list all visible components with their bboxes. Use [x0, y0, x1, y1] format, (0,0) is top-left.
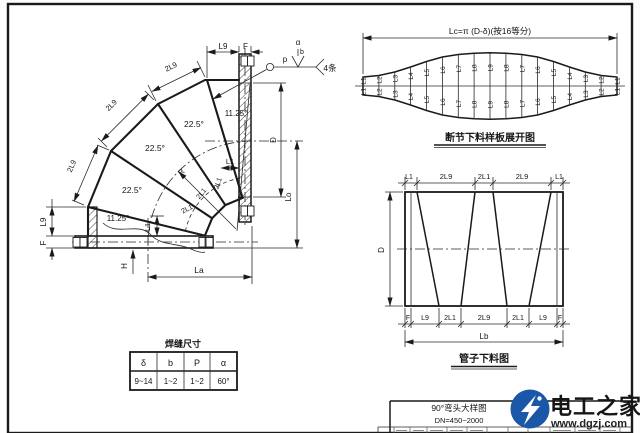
- dim-label: F: [406, 315, 410, 322]
- pipe-layout-title: 管子下料图: [459, 352, 509, 365]
- ordinate-label: L2: [376, 76, 383, 84]
- callout-label: α: [296, 38, 301, 47]
- ordinate-label: L4: [567, 93, 574, 101]
- bolt-tab: [206, 238, 213, 248]
- ordinate-label: L9: [488, 101, 495, 109]
- dim-label: 2L1: [478, 172, 491, 181]
- ordinate-label: L6: [440, 98, 447, 106]
- dim-label: 2L1: [512, 315, 524, 322]
- watermark-name: 电工之家: [550, 394, 640, 419]
- ordinate-label: L1: [615, 88, 622, 96]
- ordinate-label: L5: [551, 69, 558, 77]
- dim-label: F: [243, 42, 248, 51]
- dim-label: L9: [39, 217, 48, 226]
- ordinate-label: L8: [503, 64, 510, 72]
- watermark-logo-dot: [537, 396, 541, 400]
- bolt-tab: [73, 238, 80, 248]
- dim-label: L9: [421, 315, 429, 322]
- dim-label: L9: [539, 315, 547, 322]
- drawing-title: 90°弯头大样图: [431, 403, 486, 413]
- ordinate-label: L4: [408, 93, 415, 101]
- bolt-tab: [248, 206, 255, 216]
- watermark-url: www.dgzj.com: [550, 418, 627, 430]
- ordinate-label: L8: [503, 100, 510, 108]
- callout-label: b: [300, 49, 304, 56]
- ordinate-label: L8: [472, 100, 479, 108]
- ordinate-label: L3: [392, 90, 399, 98]
- bolt-tab: [248, 56, 255, 66]
- ordinate-label: L5: [424, 96, 431, 104]
- dim-label: D: [377, 247, 386, 253]
- angle-label: 22.5°: [145, 143, 165, 153]
- ordinate-label: L7: [519, 100, 526, 108]
- angle-label: 11.25°: [107, 214, 130, 223]
- table-cell: 1~2: [164, 377, 178, 386]
- bolt-tab: [80, 238, 87, 248]
- angle-label: 22.5°: [122, 185, 142, 195]
- ordinate-label: L5: [424, 69, 431, 77]
- watermark: 电工之家 www.dgzj.com: [511, 390, 640, 431]
- bolt-tab: [241, 56, 248, 66]
- bolt-tab: [241, 206, 248, 216]
- development-dim-label: Lc=π (D-δ)(按16等分): [449, 26, 531, 36]
- ordinate-label: L4: [408, 72, 415, 80]
- table-title: 焊缝尺寸: [165, 338, 201, 349]
- table-cell: 1~2: [190, 377, 204, 386]
- ordinate-label: L7: [456, 100, 463, 108]
- ordinate-label: L8: [472, 64, 479, 72]
- ordinate-label: L1: [361, 88, 368, 96]
- drawing-page: L9 F L1 D Lo La H L9 F L1 R 11.25° 22.5°…: [0, 0, 640, 433]
- table-header: α: [221, 358, 226, 368]
- development-title: 断节下料样板展开图: [445, 131, 535, 144]
- dim-label: 2L9: [516, 172, 529, 181]
- dim-label: 2L9: [478, 313, 491, 322]
- ordinate-label: L9: [488, 64, 495, 72]
- ordinate-label: L3: [583, 90, 590, 98]
- dim-label: L1: [405, 174, 413, 181]
- table-header: b: [168, 358, 173, 368]
- dim-label: La: [194, 265, 204, 275]
- dim-label: H: [120, 263, 129, 269]
- bottom-duct-wall: [88, 207, 97, 248]
- ordinate-label: L5: [551, 96, 558, 104]
- dim-label: Lo: [284, 192, 293, 201]
- dim-label: F: [39, 240, 48, 245]
- dim-label: Lb: [480, 332, 489, 341]
- callout-label: p: [283, 55, 288, 64]
- dim-label: F: [558, 315, 562, 322]
- table-cell: 9~14: [134, 377, 153, 386]
- ordinate-label: L3: [392, 75, 399, 83]
- ordinate-label: L6: [535, 98, 542, 106]
- angle-label: 22.5°: [184, 119, 204, 129]
- dim-label: 2L9: [440, 172, 453, 181]
- ordinate-label: L2: [599, 76, 606, 84]
- callout-label: 4条: [323, 63, 337, 73]
- table-cell: 60°: [217, 377, 229, 386]
- dim-label: L1: [143, 223, 152, 231]
- table-header: P: [194, 358, 200, 368]
- ordinate-label: L7: [456, 65, 463, 73]
- dim-label: 2L1: [444, 315, 456, 322]
- ordinate-label: L3: [583, 75, 590, 83]
- technical-drawing: L9 F L1 D Lo La H L9 F L1 R 11.25° 22.5°…: [0, 0, 640, 433]
- angle-label: 11.25°: [225, 109, 248, 118]
- dim-label: D: [269, 137, 278, 143]
- dim-label: L9: [219, 42, 228, 51]
- ordinate-label: L2: [376, 88, 383, 96]
- ordinate-label: L6: [440, 66, 447, 74]
- ordinate-label: L4: [567, 72, 574, 80]
- ordinate-label: L2: [599, 88, 606, 96]
- drawing-subtitle: DN=450~2000: [435, 416, 484, 425]
- ordinate-label: L1: [361, 77, 368, 85]
- table-header: δ: [141, 358, 146, 368]
- ordinate-label: L7: [519, 65, 526, 73]
- dim-label: L1: [226, 157, 234, 166]
- dim-label: L1: [555, 174, 563, 181]
- ordinate-label: L1: [615, 77, 622, 85]
- ordinate-label: L6: [535, 66, 542, 74]
